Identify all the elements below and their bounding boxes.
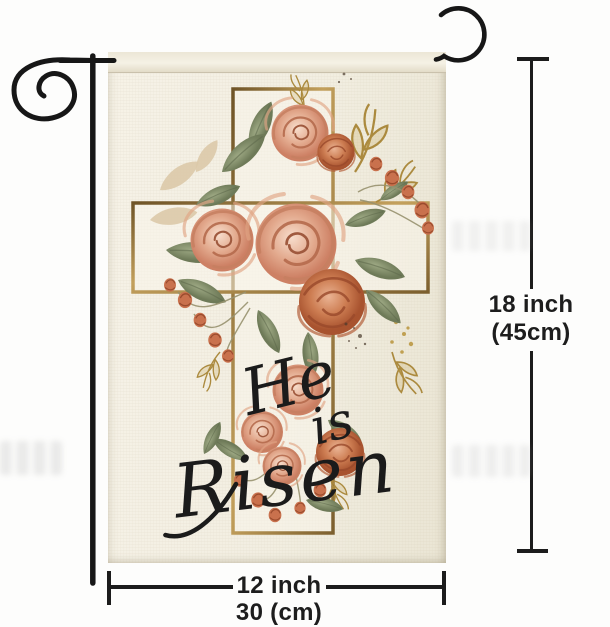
flag-text-risen: Risen [167,423,402,536]
flag-panel: He is Risen [108,52,446,563]
height-label-cm: (45cm) [471,319,591,347]
width-label-cm: 30 (cm) [219,599,339,627]
floral-cross-artwork: He is Risen [108,52,446,563]
stand-scroll-finial [14,60,95,119]
width-dimension-label-metric: 30 (cm) [219,599,339,627]
he-is-risen-text: He is Risen [162,336,401,537]
height-label-inch: 18 inch [471,291,591,319]
product-image: He is Risen 18 inch (45cm) [0,0,610,610]
height-dimension-label: 18 inch (45cm) [471,291,591,347]
width-dimension-label: 12 inch [219,572,339,600]
watermark-right-lower [452,445,530,477]
watermark-right-upper [452,221,530,251]
width-label-inch: 12 inch [219,572,339,600]
watermark-left [0,441,62,475]
